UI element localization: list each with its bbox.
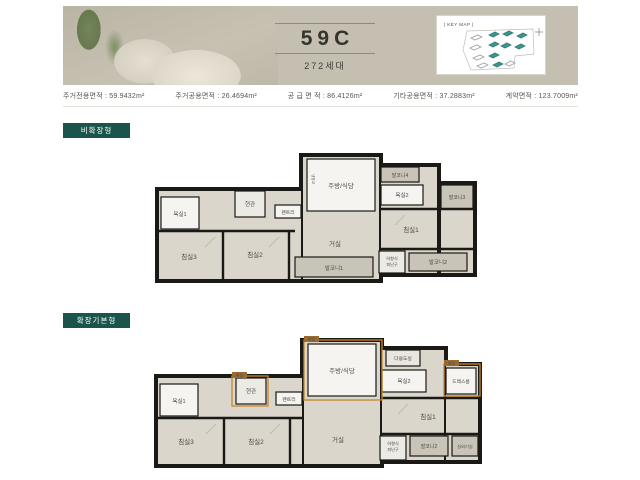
room-label-fridge: 냉장고: [311, 174, 316, 184]
key-map-buildings: [470, 31, 527, 68]
unit-title-block: 59C 272세대: [261, 23, 389, 72]
room-label-entrance: 현관: [245, 200, 255, 208]
room-label-living: 거실: [332, 435, 344, 444]
floorplan-non-expanded: 욕실1 침실3 침실2 현관 팬트리 주방/식당 냉장고 거실 발코니1 발코니…: [149, 147, 481, 295]
room-label-balcony2: 발코니2: [421, 443, 438, 450]
stats-divider: [63, 106, 578, 107]
key-map-label: | KEY MAP |: [444, 22, 474, 27]
room-label-bed2: 침실2: [248, 437, 264, 446]
room-label-balcony1: 발코니1: [325, 264, 343, 272]
room-label-hatch-line1: 하향식: [386, 255, 398, 262]
plan-type-badge-expanded: 확장기본형: [63, 313, 130, 328]
room-label-bath1: 욕실1: [173, 210, 186, 218]
room-label-pantry: 팬트리: [282, 396, 295, 403]
unit-divider-bottom: [275, 53, 375, 54]
interior-photo: [63, 6, 278, 85]
household-count: 272세대: [261, 59, 389, 72]
key-map-plan: | KEY MAP |: [437, 16, 545, 74]
compass-icon: [535, 28, 543, 36]
room-label-bath2: 욕실2: [395, 191, 408, 199]
room-label-pantry: 팬트리: [281, 209, 294, 216]
stat-other-area: 기타공용면적 : 37.2883m²: [393, 91, 475, 101]
room-label-hatch-line2: 피난구: [386, 261, 398, 268]
room-label-living: 거실: [329, 239, 341, 248]
room-label-utility: 다용도실: [394, 355, 412, 362]
room-label-kitchen: 주방/식당: [329, 366, 355, 375]
stat-contract-area: 계약면적 : 123.7009m²: [506, 91, 578, 101]
expansion-tag-entrance: 확장: [236, 372, 244, 378]
unit-name: 59C: [261, 24, 389, 53]
room-label-balcony3: 발코니3: [449, 194, 466, 201]
header-banner: 59C 272세대 | KEY MAP |: [63, 6, 578, 85]
plan-type-badge-basic: 비확장형: [63, 123, 130, 138]
expansion-tag-kitchen: 확장: [308, 336, 316, 342]
area-stats-row: 주거전용면적 : 59.9432m² 주거공용면적 : 26.4694m² 공 …: [63, 91, 578, 101]
stat-exclusive-area: 주거전용면적 : 59.9432m²: [63, 91, 145, 101]
room-label-entrance: 현관: [246, 387, 256, 395]
expansion-tag-dress: 확장: [448, 360, 456, 366]
room-label-bed2: 침실2: [247, 250, 263, 259]
room-label-kitchen: 주방/식당: [328, 181, 354, 190]
room-label-bath1: 욕실1: [172, 397, 185, 405]
stat-supply-area: 공 급 면 적 : 86.4126m²: [288, 91, 363, 101]
room-label-bed3: 침실3: [181, 252, 197, 261]
room-label-bath2: 욕실2: [397, 377, 410, 385]
floorplan-expanded: 확장 확장 확장 욕실1 침실3 침실2 거실 현관 팬트리 주방/식당 다용도…: [148, 334, 483, 476]
room-label-bed1: 침실1: [403, 225, 419, 234]
room-label-balcony2: 발코니2: [429, 258, 447, 266]
room-label-dress: 드레스룸: [452, 378, 470, 385]
key-map: | KEY MAP |: [437, 16, 545, 74]
room-label-outdoor: 실외기실: [457, 443, 473, 450]
stat-shared-area: 주거공용면적 : 26.4694m²: [175, 91, 257, 101]
room-label-hatch-line1: 하향식: [387, 440, 399, 447]
room-label-bed3: 침실3: [178, 437, 194, 446]
room-label-balcony4: 발코니4: [392, 172, 409, 179]
room-label-hatch-line2: 피난구: [387, 446, 399, 453]
room-label-bed1: 침실1: [420, 412, 436, 421]
